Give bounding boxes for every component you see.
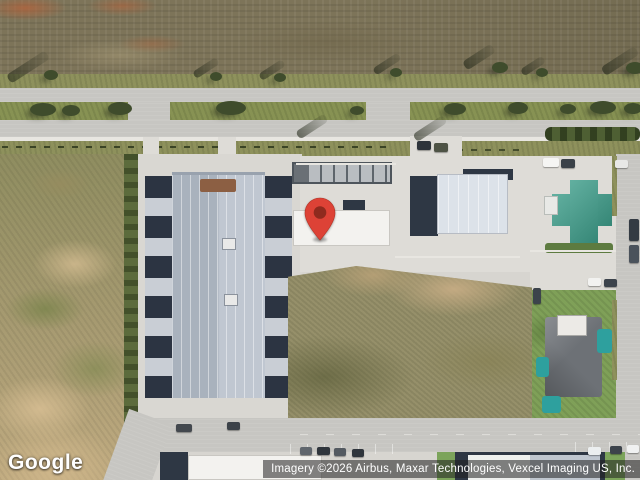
parked-car [434,143,448,152]
residence-roof-deck [557,315,587,336]
overgrown-vacant-lot-center [288,266,532,420]
parked-car [561,159,575,168]
street-east-verge-lower [612,300,617,380]
backyard-pool [542,396,561,413]
map-pin-inner-dot [314,206,327,219]
parked-car [615,160,628,168]
parked-car [588,278,601,286]
teal-building-vertical-wing [570,180,598,243]
parked-car [352,449,364,457]
parked-car [629,245,639,263]
roof-vent-2 [224,294,238,306]
parking-curb-line-3 [296,163,396,165]
pool-structure-west [536,357,549,377]
map-canvas[interactable]: Google Imagery ©2026 Airbus, Maxar Techn… [0,0,640,480]
parked-car [533,288,541,304]
parked-car [300,447,312,455]
roadside-tree [536,68,548,77]
roadside-tree [492,62,508,73]
median-turn-gap-west [128,102,170,120]
google-logo[interactable]: Google [8,451,83,475]
parked-car [317,447,330,455]
median-bush [624,103,640,114]
retail-building-roof [437,174,508,234]
parked-car [543,158,559,167]
plowed-field-north [0,0,640,78]
parked-car [604,279,617,287]
parked-car [417,141,431,150]
roadside-tree [274,73,286,82]
warehouse-entry-canopy [200,179,236,192]
teal-building-entry-canopy [544,196,558,215]
median-bush [560,104,576,114]
median-tree [216,101,246,115]
south-building-a-dark-wing [160,452,188,480]
highway-westbound-lane [0,88,640,102]
canopy-dark-bay [294,164,309,182]
parked-car [334,448,346,456]
median-tree [590,101,616,114]
parking-curb-line-1 [395,256,520,258]
roadside-tree [626,62,640,74]
median-bush [62,105,80,116]
warehouse-west-wing [145,176,172,398]
parked-car [588,447,601,455]
imagery-attribution: Imagery ©2026 Airbus, Maxar Technologies… [263,460,640,478]
median-bush [508,102,528,114]
parked-car [176,424,192,432]
median-bush [350,106,364,115]
vacant-dirt-lot-west [0,154,130,480]
map-pin-body [305,198,335,240]
median-tree [108,102,132,115]
parked-car [227,422,240,430]
map-pin-icon[interactable] [303,197,337,241]
retail-building-west-band [410,176,438,236]
parked-car [627,445,639,453]
roof-vent-1 [222,238,236,250]
parked-car [629,219,639,241]
median-bush [444,103,466,115]
fence-line-west [2,146,392,148]
parked-car [610,446,622,454]
street-south-center-line [300,434,640,435]
median-turn-gap-east [366,102,410,120]
warehouse-main-roof [172,172,265,398]
roadside-tree [44,70,58,80]
warehouse-east-wing [265,176,292,398]
parking-curb-line-2 [530,250,616,252]
pool-structure-east [597,329,612,353]
roadside-tree [390,68,402,77]
roadside-tree [210,72,222,81]
median-bush [30,103,56,116]
hedge-row-northeast [545,127,640,141]
